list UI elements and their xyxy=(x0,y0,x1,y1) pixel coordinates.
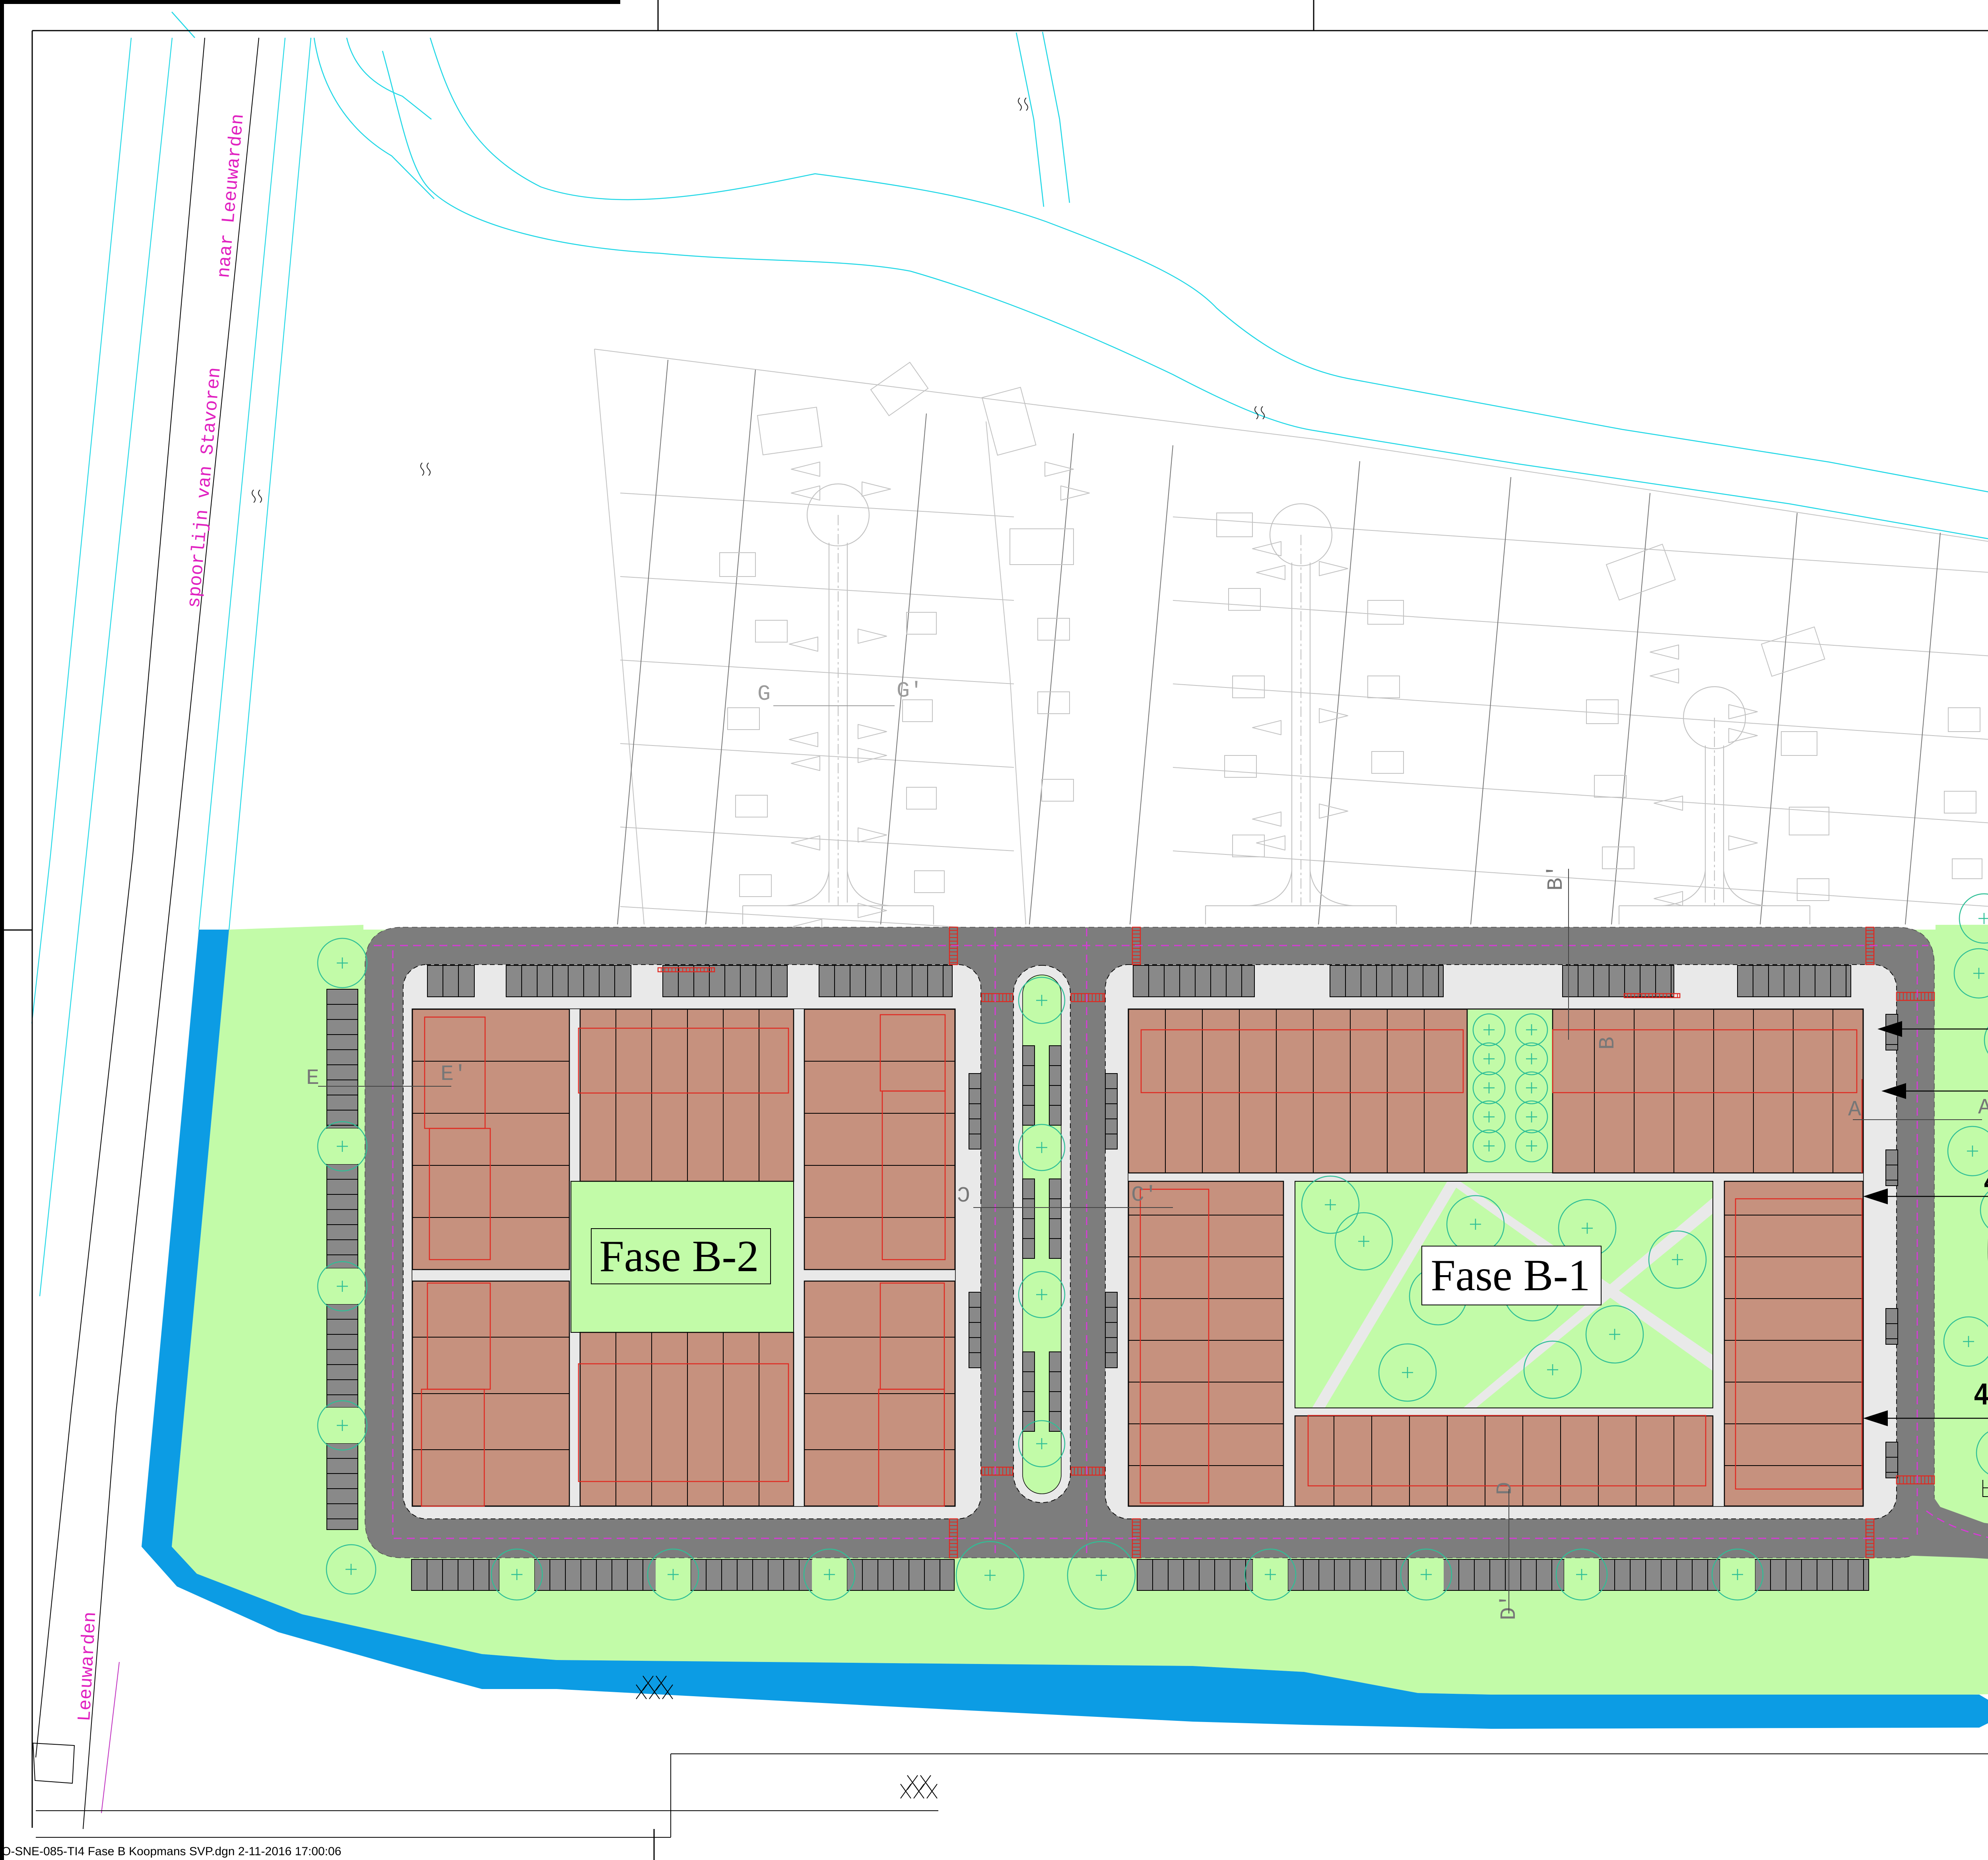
svg-text:A': A' xyxy=(1978,1095,1988,1120)
svg-text:C': C' xyxy=(1131,1182,1157,1208)
svg-text:E: E xyxy=(306,1066,319,1091)
svg-text:B: B xyxy=(1595,1037,1620,1050)
svg-text:Fase B-2: Fase B-2 xyxy=(599,1232,759,1281)
svg-text:A: A xyxy=(1848,1097,1861,1122)
svg-text:G': G' xyxy=(897,678,923,703)
svg-text:E': E' xyxy=(441,1062,467,1087)
svg-text:45.70: 45.70 xyxy=(1974,1377,1988,1411)
svg-text:Fase B-1: Fase B-1 xyxy=(1431,1251,1590,1300)
svg-text:G: G xyxy=(757,681,771,707)
svg-text:D: D xyxy=(1493,1482,1518,1495)
svg-text:48.44: 48.44 xyxy=(1984,1164,1988,1198)
svg-text:C: C xyxy=(957,1183,970,1208)
svg-text:B': B' xyxy=(1543,864,1569,891)
svg-text:O-SNE-085-TI4 Fase B Koopmans: O-SNE-085-TI4 Fase B Koopmans SVP.dgn 2-… xyxy=(2,1845,341,1858)
